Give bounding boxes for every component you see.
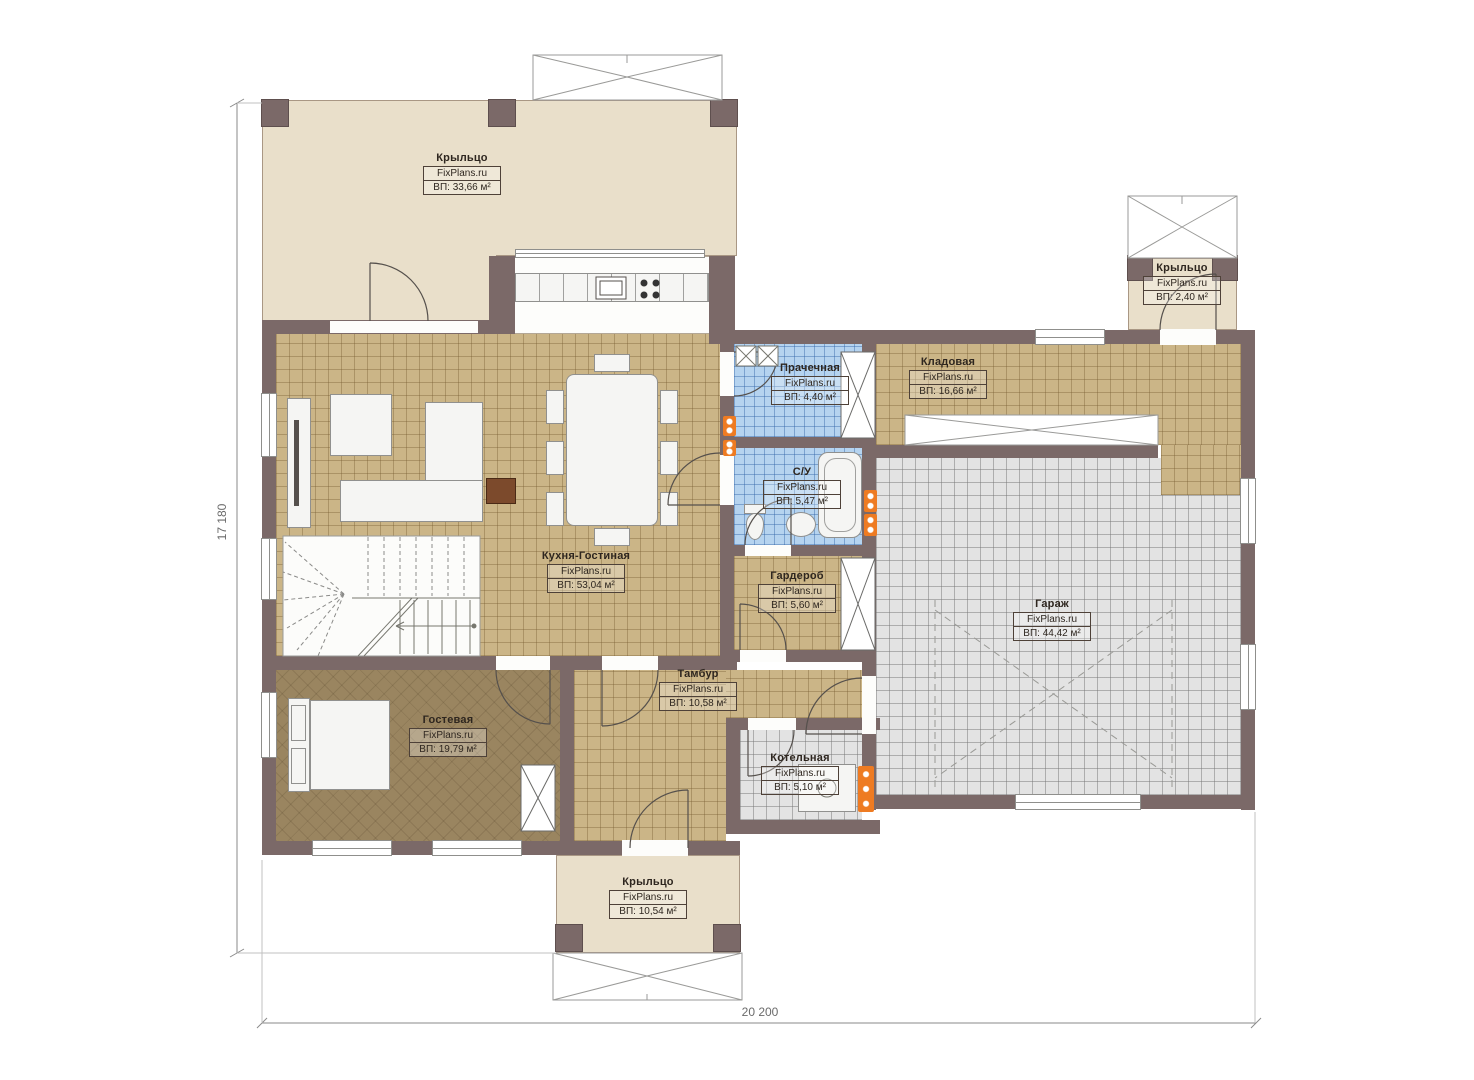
wall-laundry-bath: [726, 437, 862, 448]
wall-bedroom-right: [560, 670, 574, 855]
door-opening-porch-top: [330, 321, 478, 333]
room-label-boiler: Котельная FixPlans.ruВП: 5,10 м²: [745, 752, 855, 795]
canopy-top: [533, 55, 722, 100]
door-opening-porch-bottom: [622, 840, 688, 856]
bed-pillow: [291, 705, 306, 741]
watermark: FixPlans.ru: [759, 585, 835, 599]
watermark: FixPlans.ru: [610, 891, 686, 905]
window-garage-2: [1240, 644, 1256, 710]
dining-chair: [546, 390, 564, 424]
watermark: FixPlans.ru: [660, 683, 736, 697]
dining-chair: [546, 492, 564, 526]
tv-screen: [294, 420, 299, 506]
watermark: FixPlans.ru: [548, 565, 624, 579]
wall-boiler-left: [726, 730, 740, 834]
room-label-guest: Гостевая FixPlans.ruВП: 19,79 м²: [393, 714, 503, 757]
fireplace: [486, 478, 516, 504]
dimension-width: 20 200: [700, 1005, 820, 1019]
window-left-2: [261, 538, 277, 600]
wall-boiler-bottom: [726, 820, 880, 834]
dining-chair: [660, 492, 678, 526]
porch-top-area-lower: [262, 255, 497, 322]
door-opening-bath: [745, 545, 791, 556]
garage-entry-strip: [1161, 445, 1241, 495]
wall-kitchen-col-l: [489, 256, 515, 334]
dining-chair: [594, 354, 630, 372]
radiator: [864, 490, 877, 512]
door-opening-bedroom: [496, 656, 550, 670]
room-label-kitchen-living: Кухня-Гостиная FixPlans.ruВП: 53,04 м²: [531, 550, 641, 593]
room-label-storage: Кладовая FixPlans.ruВП: 16,66 м²: [893, 356, 1003, 399]
porch-column: [489, 100, 515, 126]
watermark: FixPlans.ru: [1144, 277, 1220, 291]
kitchen-counter: [515, 273, 709, 302]
window-bedroom-2: [432, 840, 522, 856]
room-label-porch-bottom: Крыльцо FixPlans.ruВП: 10,54 м²: [593, 876, 703, 919]
boiler-burners: [858, 766, 874, 812]
bed-mattress: [310, 700, 390, 790]
door-opening-corridor: [720, 455, 734, 505]
door-opening-laundry: [720, 352, 734, 396]
radiator: [723, 416, 736, 436]
watermark: FixPlans.ru: [410, 729, 486, 743]
room-label-vestibule: Тамбур FixPlans.ruВП: 10,58 м²: [643, 668, 753, 711]
watermark: FixPlans.ru: [1014, 613, 1090, 627]
canopy-bottom: [553, 953, 742, 1000]
dining-chair: [594, 528, 630, 546]
window-left-3: [261, 692, 277, 758]
wall-storage-garage: [876, 445, 1158, 458]
door-opening-porch-right: [1160, 329, 1216, 345]
window-storage-top: [1035, 329, 1105, 345]
washbasin: [786, 512, 816, 537]
floor-plan: 17 180 20 200 Крыльцо FixPlans.ruВП: 33,…: [0, 0, 1474, 1080]
door-opening-garage: [862, 676, 876, 734]
sofa-horizontal: [340, 480, 483, 522]
watermark: FixPlans.ru: [762, 767, 838, 781]
watermark: FixPlans.ru: [764, 481, 840, 495]
wall-right-outer: [1241, 330, 1255, 810]
watermark: FixPlans.ru: [910, 371, 986, 385]
porch-column: [262, 100, 288, 126]
porch-column: [714, 925, 740, 951]
room-label-bathroom: С/У FixPlans.ruВП: 5,47 м²: [747, 466, 857, 509]
porch-column: [711, 100, 737, 126]
room-label-garage: Гараж FixPlans.ruВП: 44,42 м²: [997, 598, 1107, 641]
window-bedroom-1: [312, 840, 392, 856]
window-left-1: [261, 393, 277, 457]
window-garage-1: [1240, 478, 1256, 544]
dimension-height: 17 180: [215, 500, 229, 544]
room-label-porch-top-right: Крыльцо FixPlans.ruВП: 2,40 м²: [1127, 262, 1237, 305]
bed-pillow: [291, 748, 306, 784]
dining-table: [566, 374, 658, 526]
tv-unit: [287, 398, 311, 528]
dining-chair: [546, 441, 564, 475]
radiator: [723, 440, 736, 456]
garage-gate: [1015, 794, 1141, 810]
dining-chair: [660, 390, 678, 424]
radiator: [864, 514, 877, 536]
door-opening-wardrobe: [740, 650, 786, 662]
watermark: FixPlans.ru: [424, 167, 500, 181]
room-label-porch-top: Крыльцо FixPlans.ruВП: 33,66 м²: [407, 152, 517, 195]
watermark: FixPlans.ru: [772, 377, 848, 391]
porch-column: [556, 925, 582, 951]
coffee-table: [330, 394, 392, 456]
window-kitchen-top: [515, 249, 705, 258]
dining-chair: [660, 441, 678, 475]
room-label-laundry: Прачечная FixPlans.ruВП: 4,40 м²: [755, 362, 865, 405]
room-label-wardrobe: Гардероб FixPlans.ruВП: 5,60 м²: [742, 570, 852, 613]
canopy-top-right: [1128, 196, 1237, 258]
door-opening-boiler: [748, 718, 796, 730]
